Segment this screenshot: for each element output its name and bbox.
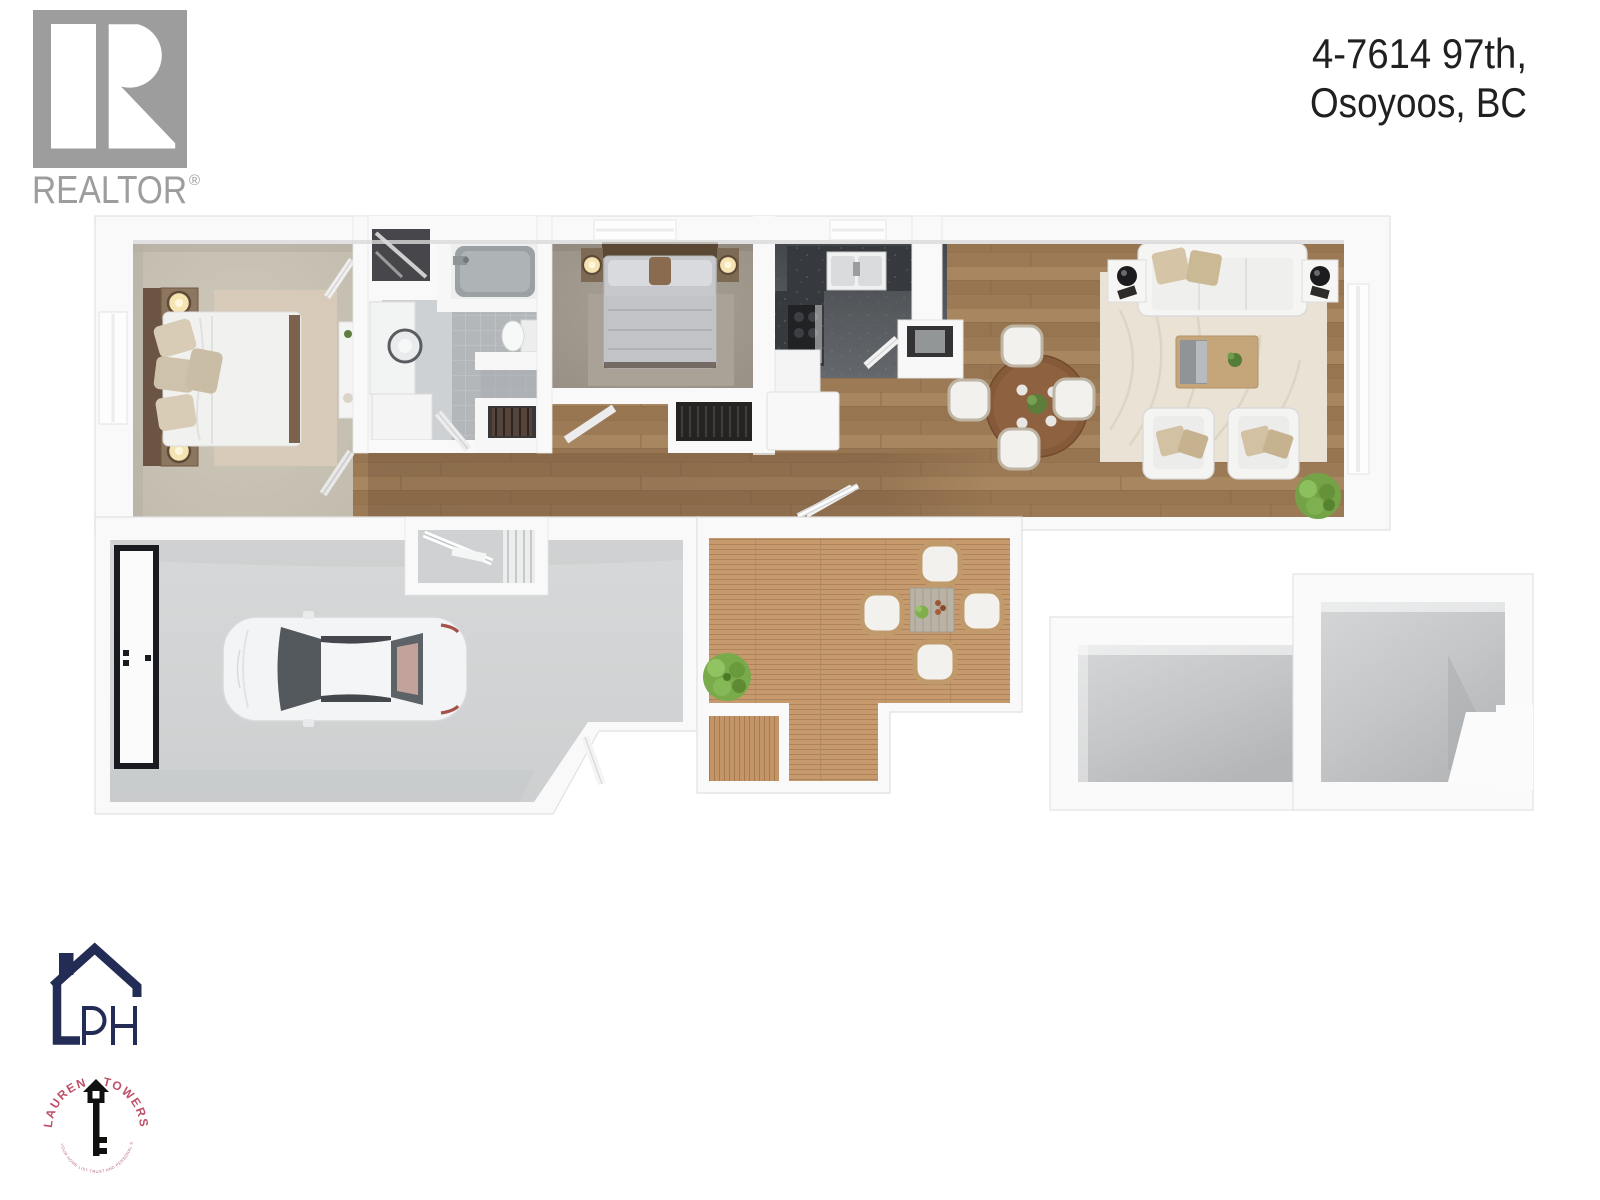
svg-text:4-7614 97th,: 4-7614 97th, bbox=[1312, 30, 1527, 77]
svg-text:REALTOR: REALTOR bbox=[32, 169, 187, 212]
svg-text:Osoyoos, BC: Osoyoos, BC bbox=[1310, 79, 1527, 126]
svg-text:®: ® bbox=[189, 172, 200, 189]
